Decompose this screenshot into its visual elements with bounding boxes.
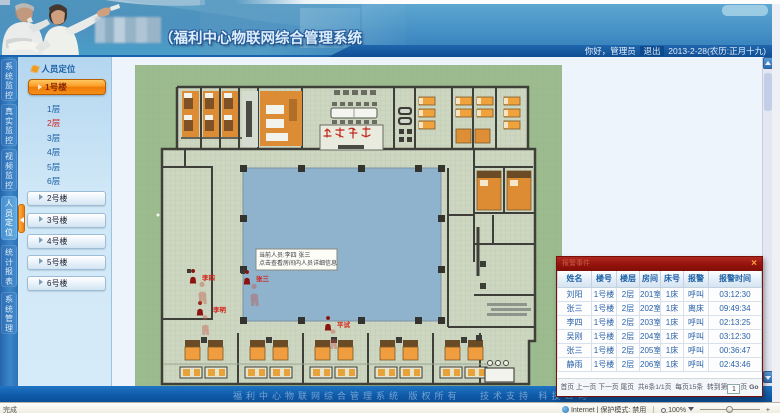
svg-text:平试: 平试	[337, 320, 351, 329]
svg-text:点击查看房间内人员详细信息: 点击查看房间内人员详细信息	[259, 259, 337, 267]
svg-text:当前人员:李四 张三: 当前人员:李四 张三	[259, 251, 310, 259]
svg-text:李明: 李明	[212, 305, 227, 314]
svg-text:张三: 张三	[256, 274, 270, 283]
svg-text:李四: 李四	[201, 273, 216, 282]
